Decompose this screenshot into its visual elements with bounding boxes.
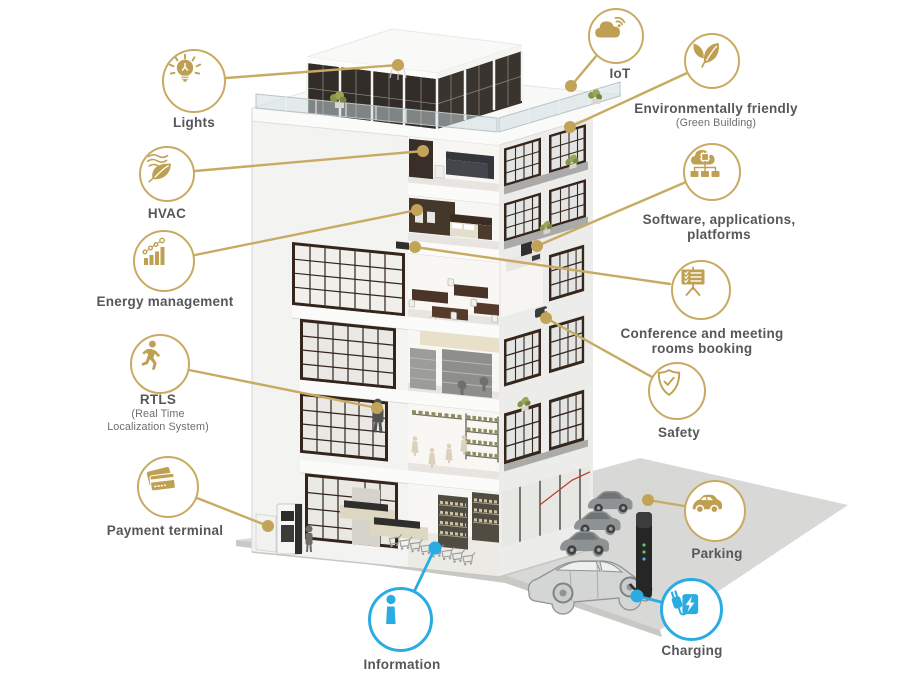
- iot-dot: [565, 80, 577, 92]
- lights-dot: [392, 59, 404, 71]
- hvac-icon: [139, 146, 195, 202]
- information-dot: [429, 542, 442, 555]
- smart-building-infographic: Lights HVAC Energy management RTLS(Real …: [0, 0, 900, 675]
- lights-label: Lights: [173, 115, 215, 130]
- iot-leader-line: [571, 55, 597, 86]
- env-dot: [564, 121, 576, 133]
- energy-management-label: Energy management: [96, 294, 233, 309]
- charging-icon: [660, 578, 723, 641]
- conference-booking-label: Conference and meeting rooms booking: [620, 326, 783, 357]
- software-platforms-label: Software, applications, platforms: [643, 212, 796, 243]
- rtls-icon: [130, 334, 190, 394]
- information-icon: [368, 587, 433, 652]
- safety-dot: [540, 312, 552, 324]
- iot-icon: [588, 8, 644, 64]
- charging-dot: [631, 590, 644, 603]
- payment-terminal-icon: [137, 456, 199, 518]
- conference-dot: [409, 241, 421, 253]
- rtls-label: RTLS(Real Time Localization System): [107, 392, 209, 433]
- parking-label: Parking: [691, 546, 742, 561]
- hvac-dot: [417, 145, 429, 157]
- payment-terminal-label: Payment terminal: [107, 523, 224, 538]
- rtls-dot: [371, 402, 383, 414]
- parking-dot: [642, 494, 654, 506]
- environmentally-friendly-label: Environmentally friendly(Green Building): [634, 101, 798, 130]
- payment-dot: [262, 520, 274, 532]
- safety-label: Safety: [658, 425, 700, 440]
- energy-dot: [411, 204, 423, 216]
- charging-label: Charging: [661, 643, 722, 658]
- environmentally-friendly-icon: [684, 33, 740, 89]
- energy-management-icon: [133, 230, 195, 292]
- hvac-label: HVAC: [148, 206, 186, 221]
- lights-icon: [162, 49, 226, 113]
- parking-icon: [684, 480, 746, 542]
- software-dot: [531, 240, 543, 252]
- information-label: Information: [364, 657, 441, 672]
- iot-label: IoT: [610, 66, 631, 81]
- conference-booking-icon: [671, 260, 731, 320]
- building-right-face: [499, 104, 593, 577]
- software-platforms-icon: [683, 143, 741, 201]
- safety-icon: [648, 362, 706, 420]
